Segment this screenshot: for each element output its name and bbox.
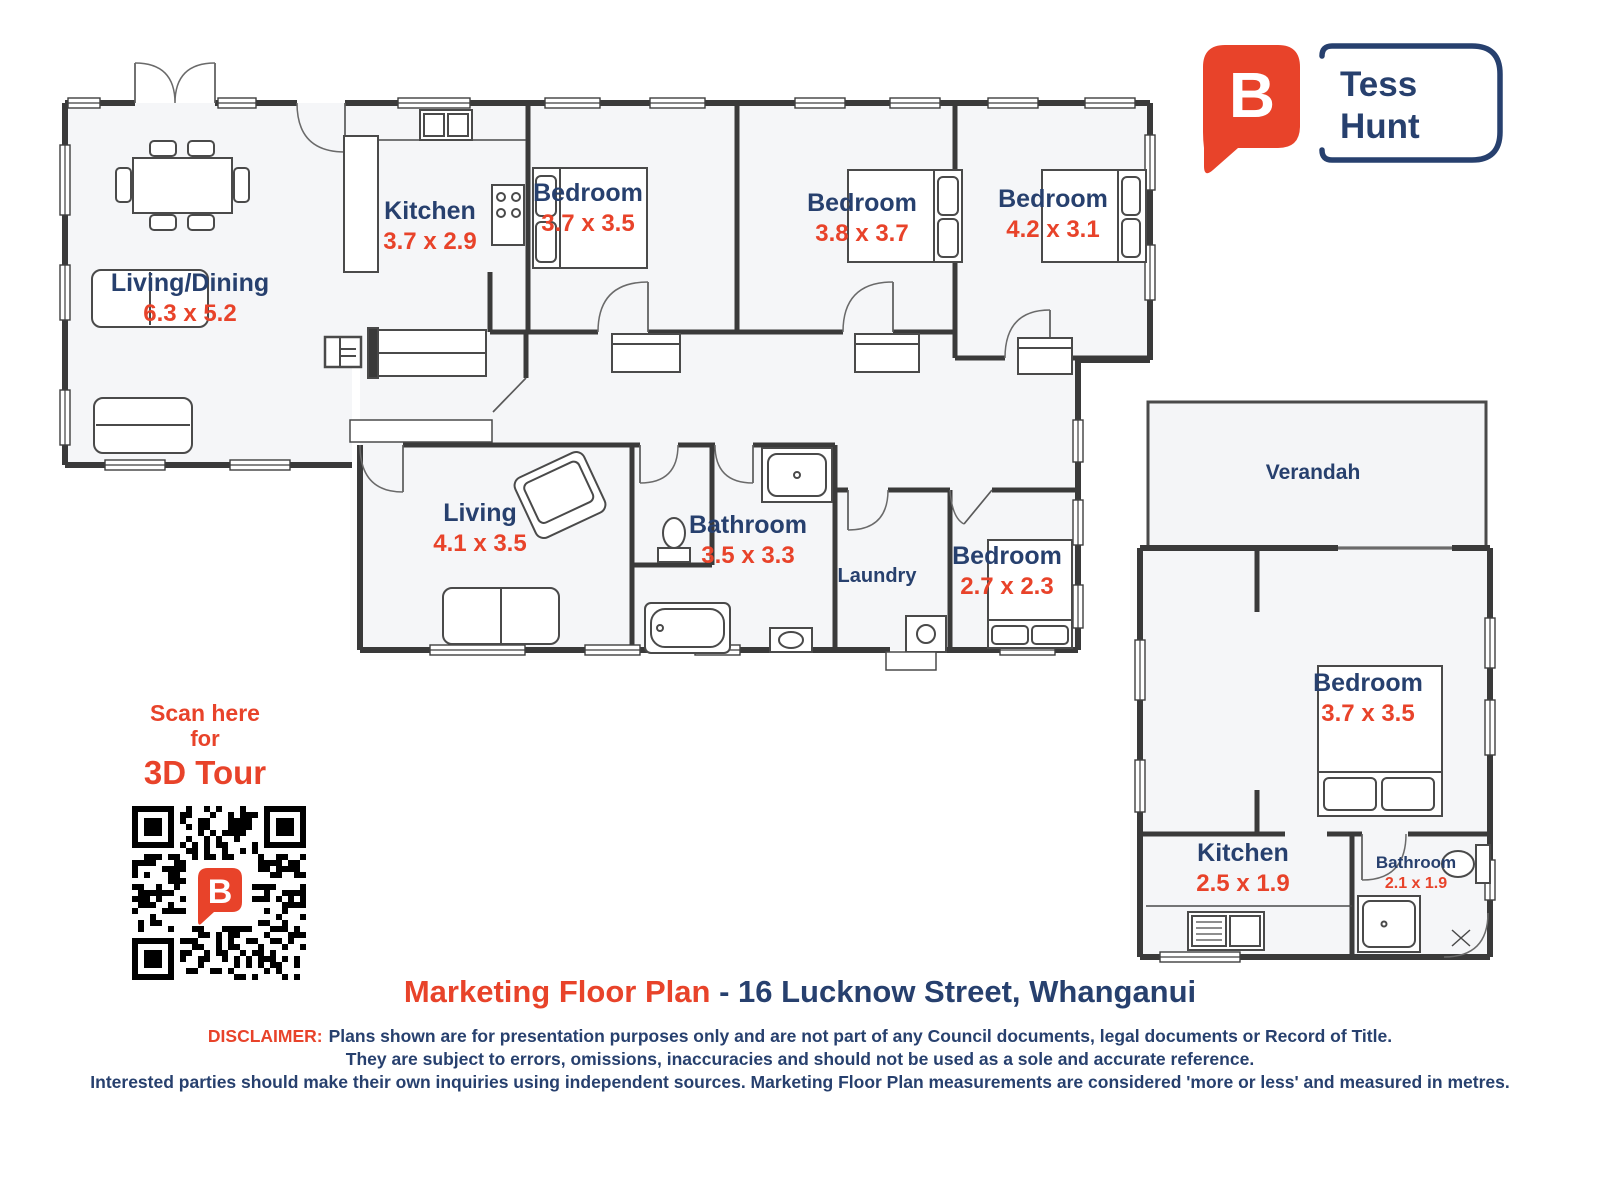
room-label-living: Living4.1 x 3.5	[433, 498, 526, 558]
room-label-kitchen-main: Kitchen3.7 x 2.9	[383, 196, 476, 256]
room-label-kitchen-unit: Kitchen2.5 x 1.9	[1196, 838, 1289, 898]
room-label-bedroom-unit: Bedroom3.7 x 3.5	[1313, 668, 1423, 728]
scan-here-block: Scan here for 3D Tour	[144, 700, 266, 793]
disclaimer-label: DISCLAIMER:	[208, 1026, 323, 1046]
scan-line-3: 3D Tour	[144, 752, 266, 793]
room-label-bedroom-2: Bedroom3.8 x 3.7	[807, 188, 917, 248]
disclaimer-line-2: They are subject to errors, omissions, i…	[0, 1049, 1600, 1070]
disclaimer-line-1: DISCLAIMER:Plans shown are for presentat…	[0, 1026, 1600, 1047]
brand-logo: B Tess Hunt	[1203, 45, 1500, 173]
room-label-bathroom-unit: Bathroom2.1 x 1.9	[1376, 853, 1456, 893]
page-title: Marketing Floor Plan - 16 Lucknow Street…	[0, 974, 1600, 1010]
disclaimer-line-3: Interested parties should make their own…	[0, 1072, 1600, 1093]
title-highlight: Marketing Floor Plan	[404, 974, 711, 1009]
room-label-bedroom-4: Bedroom2.7 x 2.3	[952, 541, 1062, 601]
qr-center-logo: B	[198, 868, 242, 925]
agent-first-name: Tess	[1340, 65, 1417, 104]
room-label-living-dining: Living/Dining6.3 x 5.2	[111, 268, 269, 328]
room-label-bedroom-3: Bedroom4.2 x 3.1	[998, 184, 1108, 244]
floor-plan-canvas: B Tess Hunt B	[0, 0, 1600, 1200]
logo-letter: B	[1229, 59, 1275, 131]
title-address: - 16 Lucknow Street, Whanganui	[719, 974, 1196, 1009]
room-label-bedroom-1: Bedroom3.7 x 3.5	[533, 178, 643, 238]
qr-logo-letter: B	[208, 873, 233, 911]
room-label-verandah: Verandah	[1266, 460, 1361, 486]
scan-line-2: for	[144, 726, 266, 751]
room-label-laundry: Laundry	[838, 564, 917, 588]
room-label-bathroom-main: Bathroom3.5 x 3.3	[689, 510, 807, 570]
scan-line-1: Scan here	[144, 700, 266, 726]
agent-last-name: Hunt	[1340, 107, 1420, 146]
